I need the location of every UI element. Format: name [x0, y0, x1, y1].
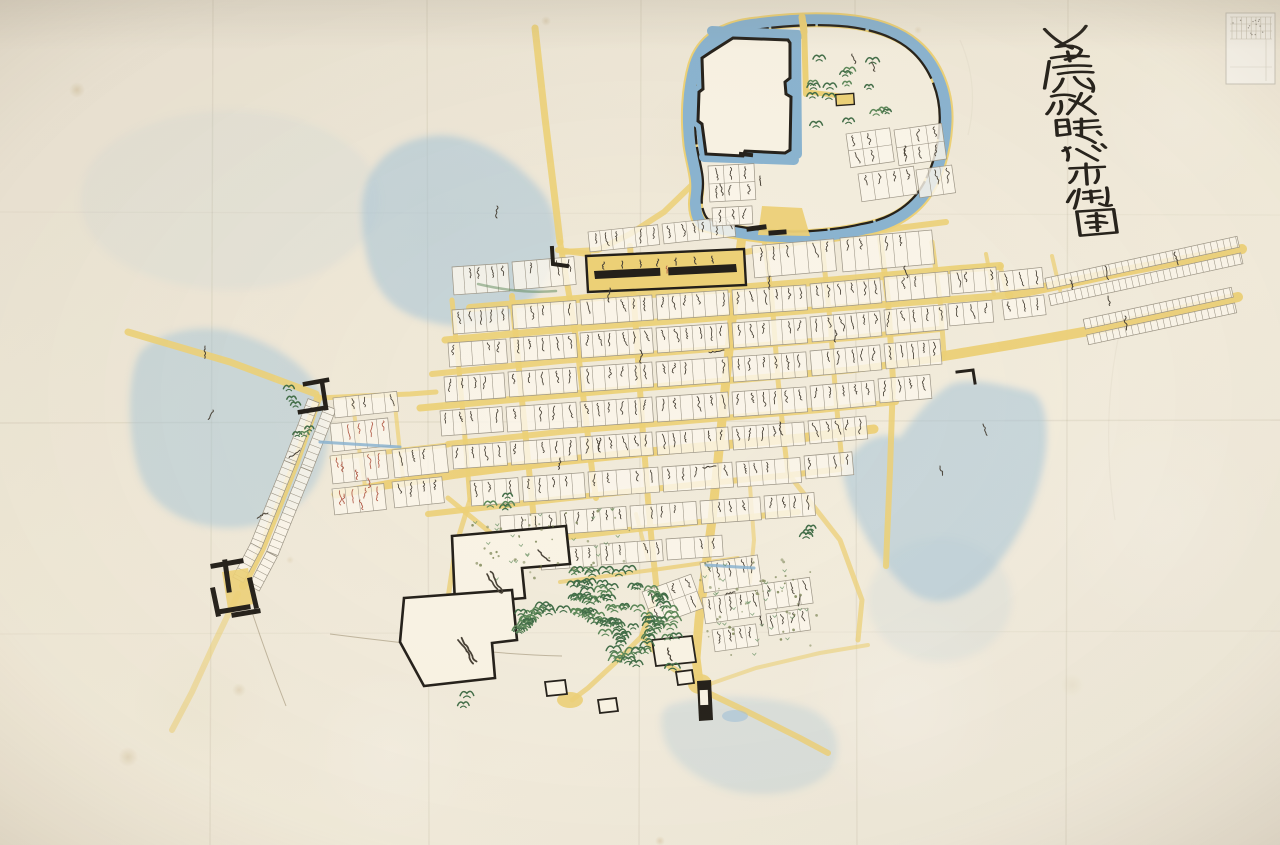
map-photo: 舊藩政時代市街圖: [0, 0, 1280, 845]
top-shadow: [0, 0, 1280, 50]
photo-vignette: [0, 0, 1280, 845]
historical-town-map: [0, 0, 1280, 845]
